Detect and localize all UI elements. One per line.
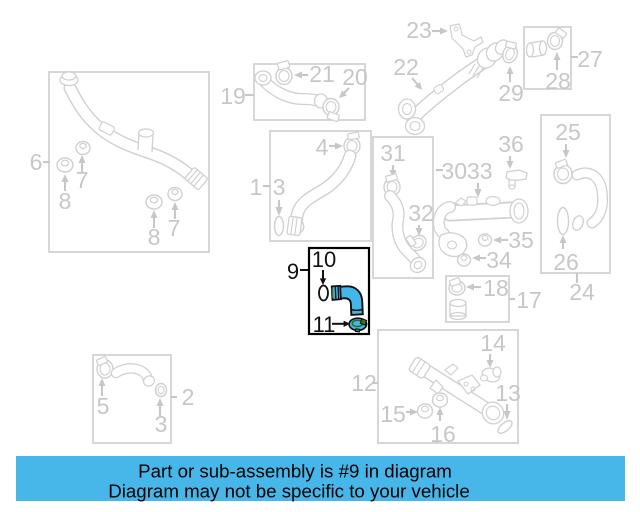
svg-text:35: 35 — [508, 227, 534, 253]
svg-text:8: 8 — [148, 224, 161, 250]
svg-text:7: 7 — [76, 167, 89, 193]
svg-text:7: 7 — [168, 215, 181, 241]
svg-text:20: 20 — [342, 64, 368, 90]
svg-text:15: 15 — [380, 401, 406, 427]
svg-text:3: 3 — [155, 411, 168, 437]
svg-text:31: 31 — [380, 140, 406, 166]
svg-text:5: 5 — [97, 393, 110, 419]
svg-text:3: 3 — [273, 174, 286, 200]
svg-text:8: 8 — [59, 188, 72, 214]
svg-text:9: 9 — [287, 259, 299, 284]
svg-text:3033: 3033 — [441, 158, 492, 184]
svg-text:6: 6 — [30, 149, 43, 175]
svg-text:17: 17 — [516, 287, 542, 313]
svg-text:14: 14 — [480, 330, 506, 356]
svg-text:22: 22 — [393, 54, 419, 80]
svg-text:24: 24 — [569, 279, 595, 305]
svg-text:4: 4 — [316, 134, 329, 160]
svg-text:27: 27 — [577, 46, 603, 72]
svg-text:11: 11 — [313, 312, 336, 337]
svg-text:Part or sub-assembly is #9 in: Part or sub-assembly is #9 in diagram — [138, 461, 452, 482]
svg-text:28: 28 — [545, 68, 571, 94]
svg-text:13: 13 — [495, 380, 521, 406]
svg-text:10: 10 — [312, 247, 336, 272]
svg-text:1: 1 — [250, 174, 263, 200]
svg-text:25: 25 — [555, 119, 581, 145]
svg-text:16: 16 — [430, 421, 456, 447]
svg-text:29: 29 — [498, 80, 524, 106]
svg-text:26: 26 — [553, 249, 579, 275]
svg-text:2: 2 — [182, 384, 195, 410]
svg-text:19: 19 — [220, 83, 246, 109]
svg-text:32: 32 — [408, 200, 434, 226]
svg-text:21: 21 — [309, 61, 335, 87]
svg-text:23: 23 — [406, 17, 432, 43]
svg-text:34: 34 — [486, 247, 512, 273]
svg-text:Diagram may not be specific to: Diagram may not be specific to your vehi… — [108, 481, 469, 502]
svg-text:36: 36 — [498, 131, 524, 157]
svg-text:18: 18 — [483, 275, 509, 301]
